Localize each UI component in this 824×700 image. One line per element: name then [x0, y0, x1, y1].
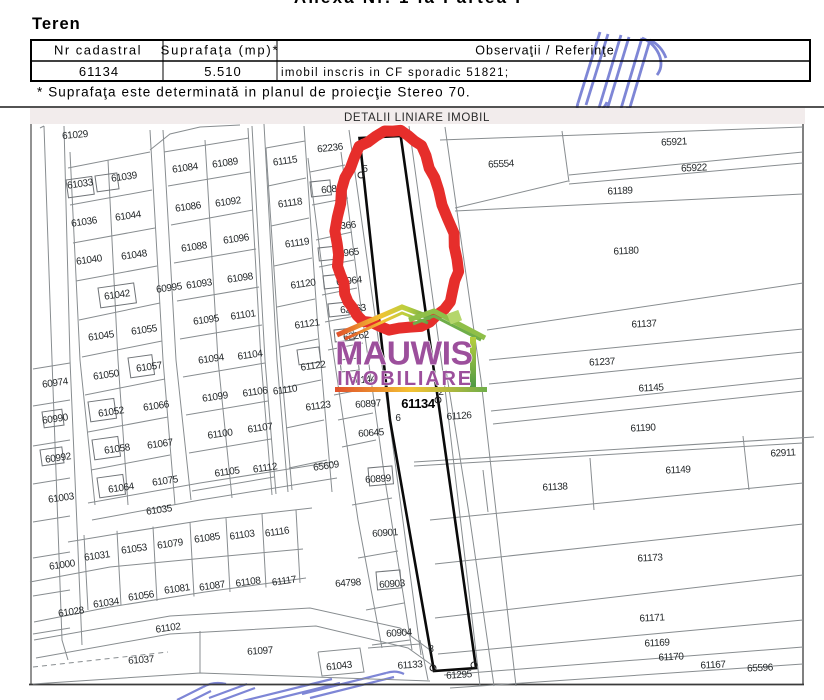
- svg-text:Suprafaţa (mp)*: Suprafaţa (mp)*: [161, 43, 280, 58]
- svg-text:61088: 61088: [181, 240, 209, 255]
- svg-text:61122: 61122: [300, 359, 327, 373]
- svg-text:62911: 62911: [770, 447, 796, 459]
- svg-text:61099: 61099: [202, 390, 230, 405]
- svg-text:61075: 61075: [152, 474, 180, 489]
- svg-text:* Suprafaţa este determinată i: * Suprafaţa este determinată in planul d…: [37, 85, 471, 100]
- svg-text:60901: 60901: [372, 527, 399, 540]
- svg-text:61171: 61171: [639, 612, 665, 624]
- svg-text:61137: 61137: [631, 318, 657, 330]
- svg-text:61134: 61134: [401, 396, 436, 411]
- svg-text:61180: 61180: [613, 245, 639, 257]
- svg-text:61079: 61079: [157, 537, 185, 552]
- svg-text:8: 8: [428, 644, 434, 655]
- svg-text:5: 5: [362, 164, 368, 175]
- svg-text:61100: 61100: [207, 427, 234, 441]
- svg-text:61094: 61094: [198, 352, 226, 367]
- svg-text:61117: 61117: [271, 574, 297, 588]
- svg-text:61050: 61050: [93, 368, 121, 383]
- svg-text:61120: 61120: [290, 277, 317, 291]
- svg-text:61089: 61089: [212, 156, 240, 171]
- svg-text:61149: 61149: [665, 464, 691, 476]
- svg-text:61066: 61066: [143, 399, 171, 414]
- svg-text:61145: 61145: [638, 382, 664, 394]
- svg-text:Anexa Nr. 1 la Partea I: Anexa Nr. 1 la Partea I: [294, 0, 522, 7]
- svg-text:61034: 61034: [93, 596, 121, 611]
- svg-text:64798: 64798: [335, 577, 362, 590]
- svg-text:65922: 65922: [681, 162, 708, 174]
- svg-text:61056: 61056: [128, 589, 156, 604]
- svg-text:DETALII LINIARE IMOBIL: DETALII LINIARE IMOBIL: [344, 112, 490, 124]
- svg-text:61048: 61048: [121, 248, 149, 263]
- svg-text:61040: 61040: [76, 253, 104, 268]
- svg-text:61097: 61097: [247, 645, 274, 658]
- svg-text:61108: 61108: [235, 575, 262, 589]
- svg-text:IMOBILIARE: IMOBILIARE: [337, 368, 473, 390]
- svg-text:61037: 61037: [128, 654, 155, 667]
- svg-text:65609: 65609: [313, 459, 341, 474]
- svg-text:6: 6: [395, 413, 401, 424]
- svg-text:61084: 61084: [172, 161, 200, 176]
- svg-text:60645: 60645: [358, 427, 385, 440]
- svg-text:61115: 61115: [272, 154, 298, 168]
- svg-text:65921: 65921: [661, 136, 688, 148]
- svg-text:65596: 65596: [747, 662, 774, 674]
- svg-text:61110: 61110: [272, 383, 298, 397]
- svg-text:61031: 61031: [84, 549, 112, 564]
- svg-text:65554: 65554: [488, 158, 515, 170]
- svg-text:61123: 61123: [305, 399, 332, 413]
- svg-text:61033: 61033: [67, 177, 95, 192]
- svg-text:61042: 61042: [104, 288, 132, 303]
- svg-text:60899: 60899: [365, 473, 392, 486]
- svg-text:60903: 60903: [379, 578, 406, 591]
- svg-text:61118: 61118: [277, 196, 303, 210]
- svg-text:61098: 61098: [227, 271, 255, 286]
- svg-text:60897: 60897: [355, 398, 382, 411]
- svg-text:61045: 61045: [88, 329, 116, 344]
- svg-text:61096: 61096: [223, 232, 251, 247]
- svg-text:61003: 61003: [48, 491, 76, 506]
- svg-text:61053: 61053: [121, 542, 149, 557]
- svg-text:61167: 61167: [700, 659, 726, 671]
- svg-text:61169: 61169: [644, 637, 670, 649]
- svg-text:61116: 61116: [264, 525, 290, 539]
- svg-text:61035: 61035: [146, 503, 174, 518]
- svg-text:MAUWIS: MAUWIS: [335, 336, 472, 373]
- svg-text:60990: 60990: [42, 412, 70, 427]
- svg-text:61085: 61085: [194, 531, 222, 546]
- svg-text:61134: 61134: [79, 64, 119, 79]
- svg-text:60974: 60974: [42, 376, 70, 391]
- svg-text:61126: 61126: [446, 410, 473, 423]
- svg-text:61237: 61237: [589, 356, 616, 368]
- svg-text:62236: 62236: [317, 142, 345, 156]
- svg-text:imobil inscris in CF sporadic: imobil inscris in CF sporadic 51821;: [281, 67, 509, 79]
- svg-text:61121: 61121: [294, 317, 321, 331]
- svg-text:60992: 60992: [45, 451, 73, 466]
- svg-text:61058: 61058: [104, 442, 132, 457]
- svg-text:61170: 61170: [658, 651, 684, 663]
- svg-text:61101: 61101: [230, 308, 257, 322]
- svg-text:61086: 61086: [175, 200, 203, 215]
- svg-text:61190: 61190: [630, 422, 656, 434]
- svg-text:61055: 61055: [131, 323, 159, 338]
- svg-text:61093: 61093: [186, 277, 214, 292]
- svg-text:61104: 61104: [237, 348, 264, 362]
- svg-text:61052: 61052: [98, 405, 126, 420]
- svg-text:Observaţii / Referinţe: Observaţii / Referinţe: [475, 44, 614, 58]
- svg-text:61133: 61133: [397, 659, 424, 672]
- svg-text:61000: 61000: [49, 558, 77, 573]
- svg-text:61106: 61106: [242, 385, 269, 399]
- svg-text:Nr cadastral: Nr cadastral: [54, 43, 142, 58]
- svg-text:61044: 61044: [115, 209, 143, 224]
- svg-text:61057: 61057: [136, 360, 164, 375]
- svg-text:61092: 61092: [215, 195, 243, 210]
- svg-text:61119: 61119: [284, 236, 310, 250]
- svg-text:Teren: Teren: [32, 15, 81, 33]
- svg-text:61064: 61064: [108, 481, 136, 496]
- svg-text:61039: 61039: [111, 170, 139, 185]
- svg-text:61189: 61189: [607, 185, 633, 197]
- svg-text:60904: 60904: [386, 627, 413, 640]
- svg-text:61029: 61029: [62, 129, 90, 142]
- svg-text:61036: 61036: [71, 215, 99, 230]
- svg-text:5.510: 5.510: [204, 64, 242, 79]
- svg-text:60995: 60995: [156, 281, 184, 296]
- svg-text:61103: 61103: [229, 528, 256, 542]
- svg-text:61138: 61138: [542, 481, 568, 493]
- svg-text:61173: 61173: [637, 552, 663, 564]
- svg-text:61043: 61043: [326, 660, 354, 674]
- svg-text:61087: 61087: [199, 579, 227, 594]
- svg-text:61107: 61107: [247, 421, 274, 435]
